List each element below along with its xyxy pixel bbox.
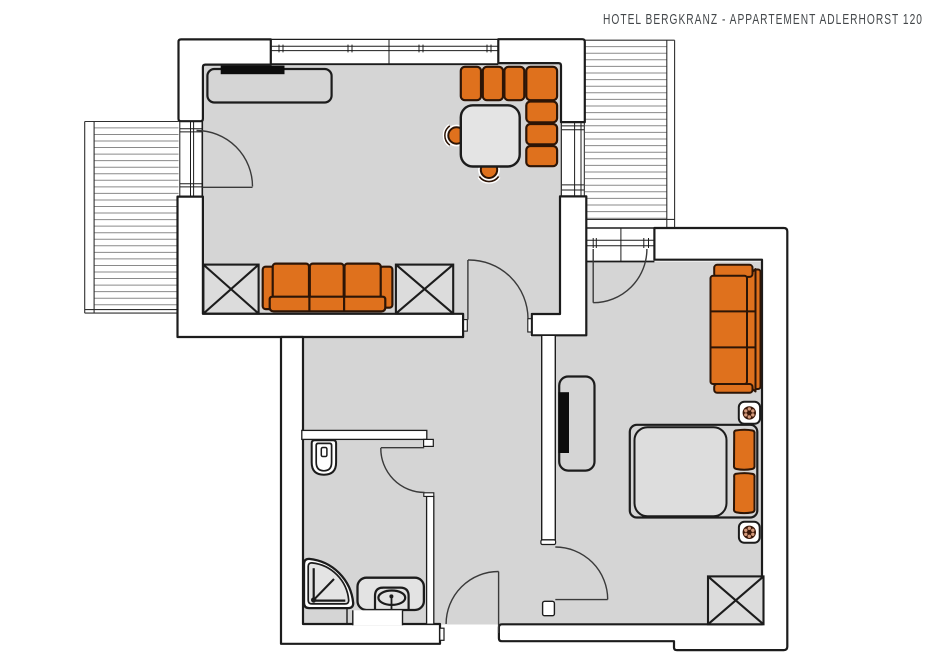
svg-text:HOTEL BERGKRANZ - APPARTEMENT: HOTEL BERGKRANZ - APPARTEMENT ADLERHORST… — [603, 11, 923, 28]
